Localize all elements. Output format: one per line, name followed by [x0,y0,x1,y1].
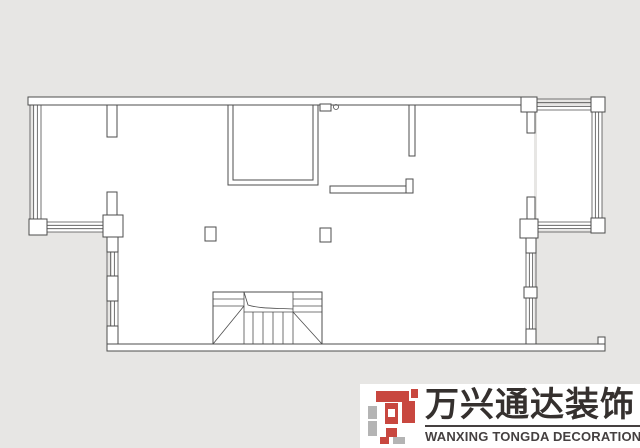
logo-text-block: 万兴通达装饰 WANXING TONGDA DECORATION [425,388,640,444]
logo-chinese-text: 万兴通达装饰 [425,388,640,424]
logo-divider [425,425,640,427]
logo-english-text: WANXING TONGDA DECORATION [425,429,640,444]
logo-watermark: 万兴通达装饰 WANXING TONGDA DECORATION [360,384,640,448]
logo-mark-icon [367,389,419,444]
floor-plan-drawing [0,0,640,448]
page-background: 万兴通达装饰 WANXING TONGDA DECORATION [0,0,640,448]
